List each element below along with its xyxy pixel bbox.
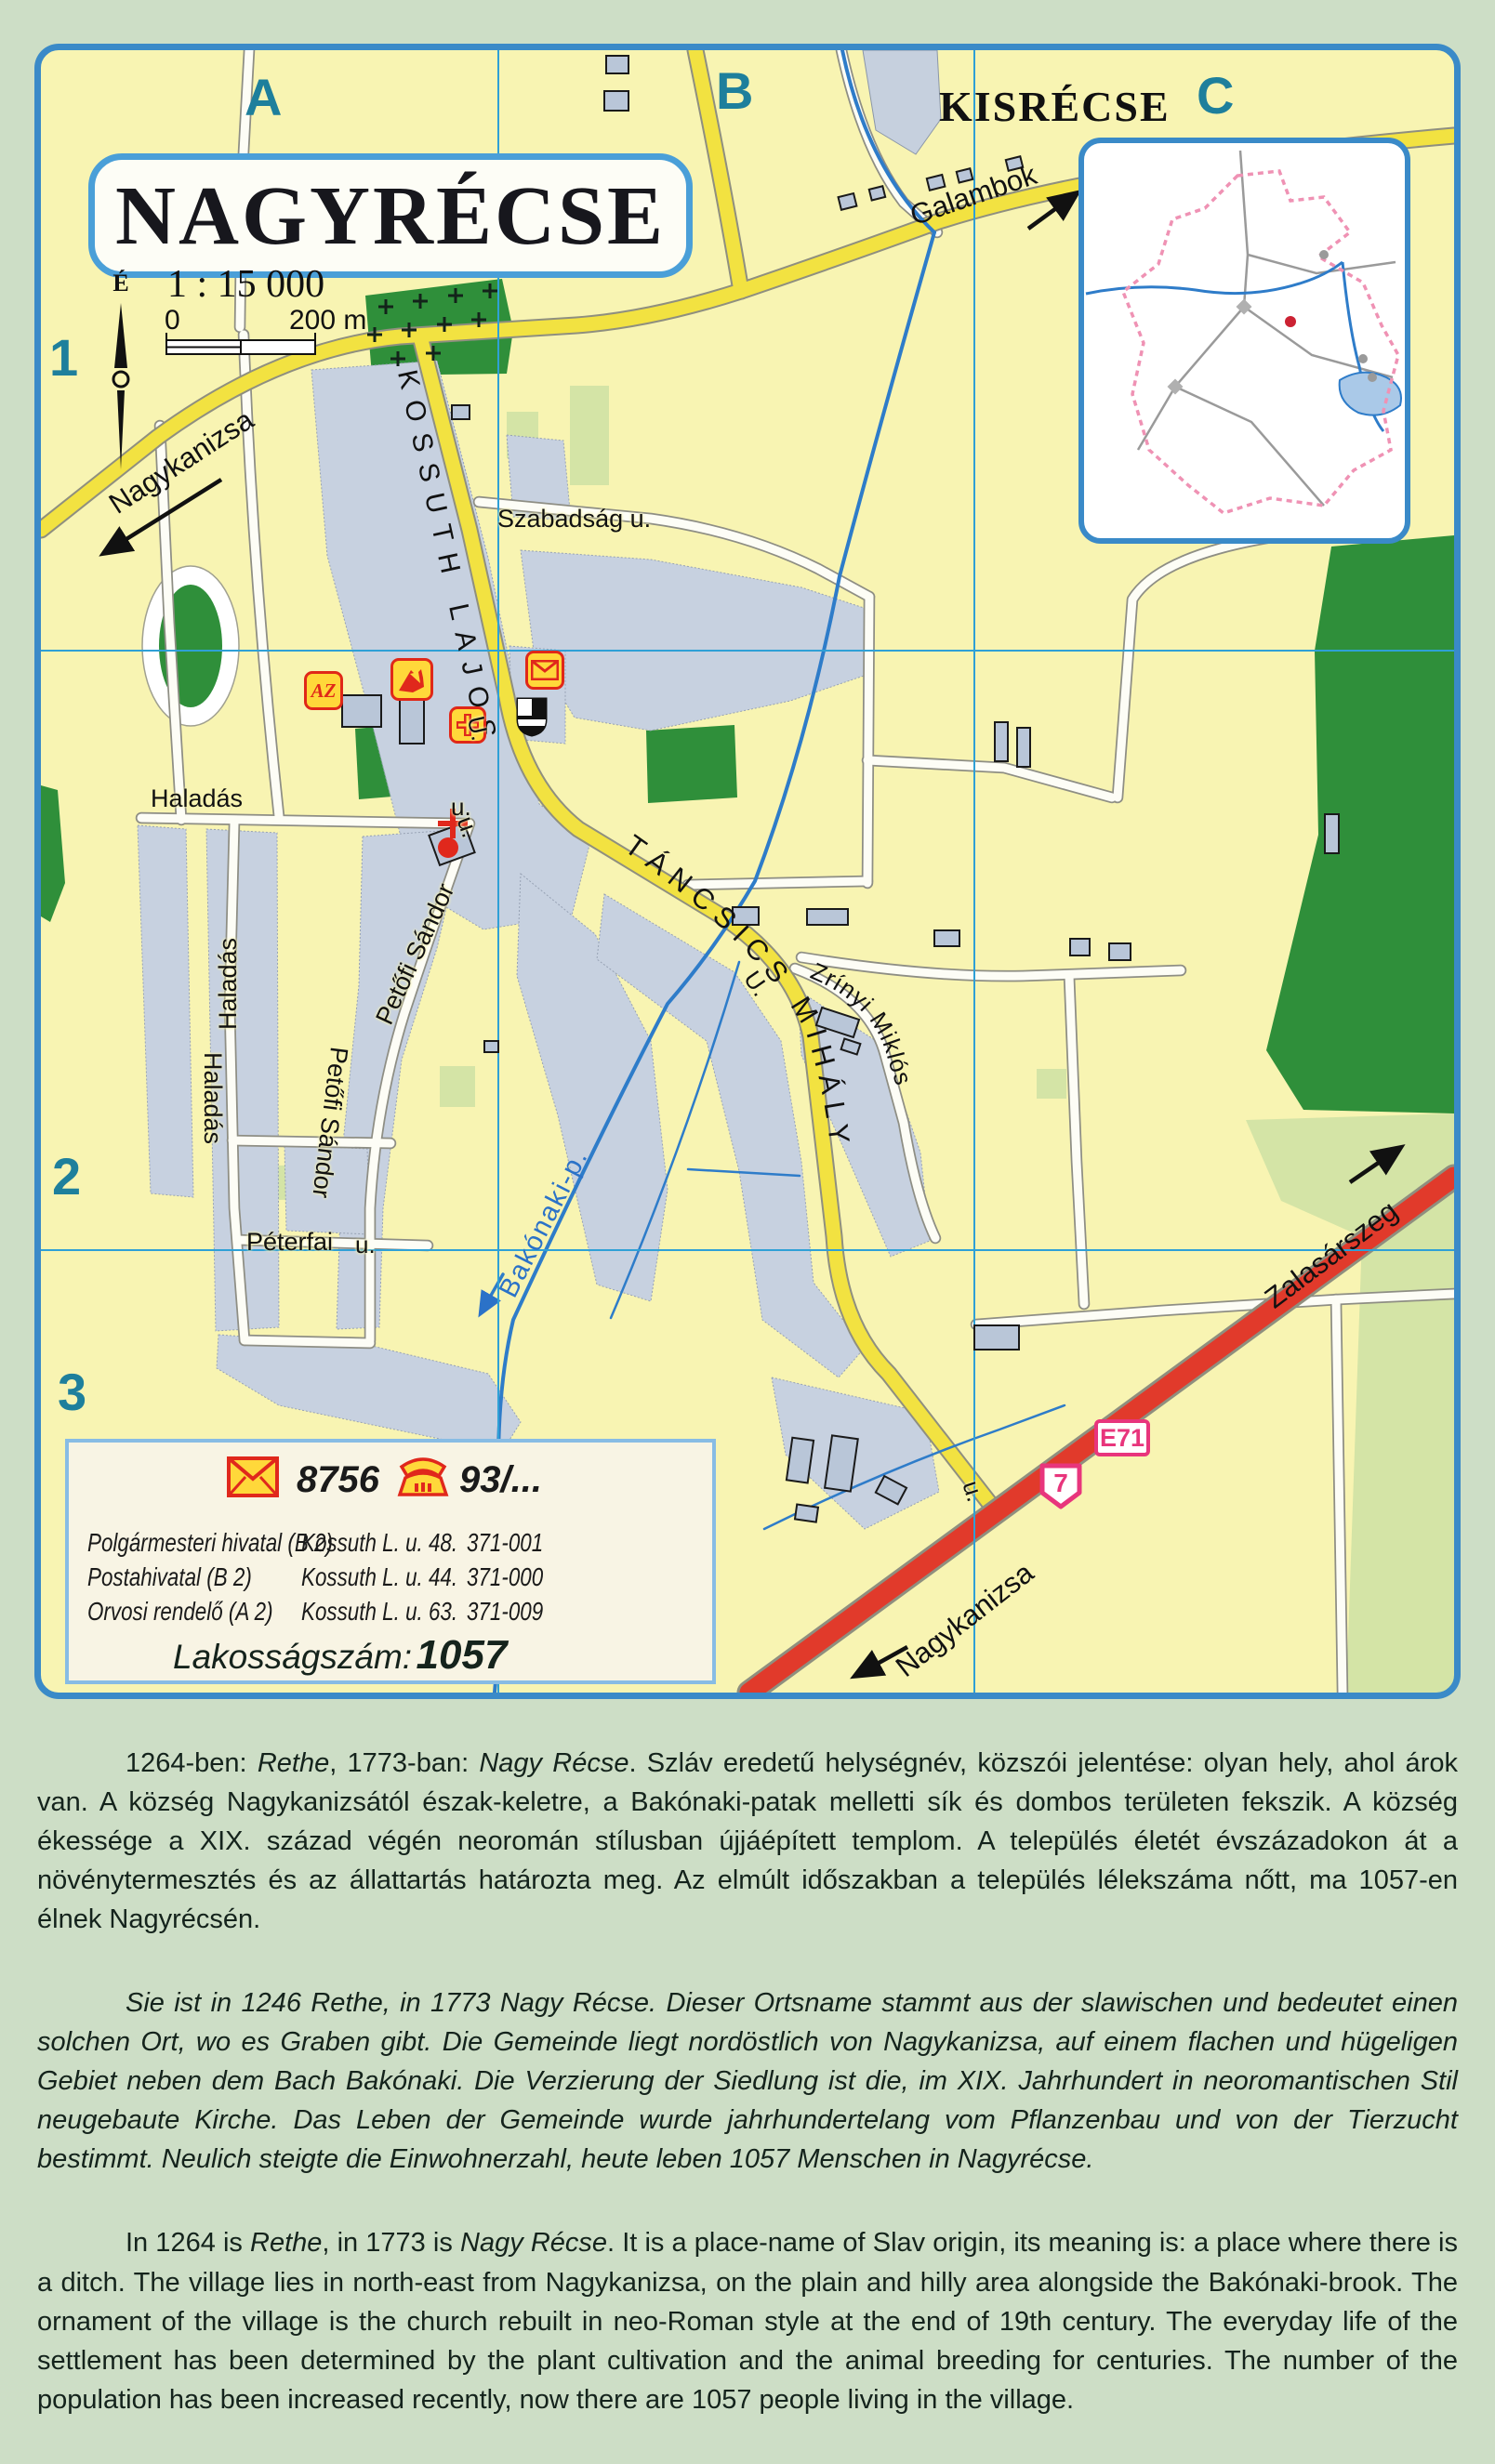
- legend-row-phone-2: 371-000: [467, 1562, 562, 1592]
- post-office-icon: [525, 651, 564, 690]
- street-label-szabadsag: Szabadság u.: [497, 507, 651, 532]
- legend-postal-code: 8756: [297, 1459, 379, 1501]
- street-label-peterfai-u: u.: [355, 1232, 376, 1257]
- route7-sign: 7: [1039, 1462, 1083, 1510]
- grid-row-2: 2: [52, 1151, 81, 1203]
- map-page: { "map": { "title": "NAGYRÉCSE", "scale_…: [0, 0, 1495, 2324]
- inset-roads: [1138, 151, 1396, 506]
- grid-col-b: B: [716, 65, 753, 117]
- legend-phone-icon: [396, 1454, 450, 1503]
- town-hall-icon: AZ: [304, 671, 343, 710]
- town-map: KOSSUTH LAJOS TÁNCSICS MIHÁLY Zrínyi Mik…: [28, 37, 1467, 1706]
- grid-col-a: A: [245, 72, 282, 124]
- inset-nagyrecse-dot: [1285, 316, 1296, 327]
- shield-icon: [518, 699, 548, 735]
- sports-field: [142, 566, 239, 726]
- north-arrow-icon: [93, 297, 149, 479]
- e71-route-sign: E71: [1094, 1419, 1150, 1456]
- legend-row-phone-1: 371-001: [467, 1528, 562, 1558]
- scale-bar-end: 200 m: [289, 307, 366, 336]
- map-title: NAGYRÉCSE: [88, 153, 693, 278]
- neighbor-settlement-label: KISRÉCSE: [939, 82, 1171, 131]
- legend-box: 8756 93/... Polgármesteri hivatal (B 2) …: [65, 1439, 716, 1684]
- grid-row-3: 3: [58, 1366, 86, 1418]
- legend-row-phone-3: 371-009: [467, 1597, 562, 1627]
- book-icon: [390, 658, 433, 701]
- paragraph-english: In 1264 is Rethe, in 1773 is Nagy Récse.…: [37, 2223, 1458, 2418]
- legend-postal-icon: [227, 1456, 279, 1502]
- inset-graphics: [1084, 143, 1405, 538]
- scale-ratio: 1 : 15 000: [167, 262, 324, 307]
- paragraph-hungarian: 1264-ben: Rethe, 1773-ban: Nagy Récse. S…: [37, 1744, 1458, 1939]
- description-block: 1264-ben: Rethe, 1773-ban: Nagy Récse. S…: [37, 1744, 1458, 2464]
- north-indicator: É: [93, 270, 149, 479]
- legend-row-name-2: Postahivatal (B 2): [87, 1562, 293, 1592]
- scale-bar-start: 0: [165, 307, 180, 336]
- street-label-haladas-v1: Haladás: [216, 938, 241, 1030]
- paragraph-german: Sie ist in 1246 Rethe, in 1773 Nagy Récs…: [37, 1983, 1458, 2179]
- scale-bar: 0 200 m: [153, 307, 386, 365]
- legend-phone-prefix: 93/...: [459, 1459, 542, 1501]
- grid-col-c: C: [1197, 70, 1234, 122]
- overview-inset-map: [1078, 138, 1410, 544]
- legend-row-name-3: Orvosi rendelő (A 2): [87, 1597, 320, 1627]
- street-label-haladas-h: Haladás: [151, 786, 243, 811]
- population-label: Lakosságszám:: [173, 1638, 412, 1676]
- inset-boundary: [1123, 171, 1398, 513]
- population-value: 1057: [417, 1632, 508, 1678]
- population-line: Lakosságszám: 1057: [173, 1632, 507, 1679]
- az-icon-label: AZ: [311, 679, 337, 703]
- north-label: É: [93, 270, 149, 297]
- grid-row-1: 1: [49, 332, 78, 384]
- route7-number: 7: [1053, 1469, 1068, 1497]
- street-label-peterfai: Péterfai: [246, 1230, 333, 1255]
- street-label-haladas-v2: Haladás: [200, 1052, 225, 1144]
